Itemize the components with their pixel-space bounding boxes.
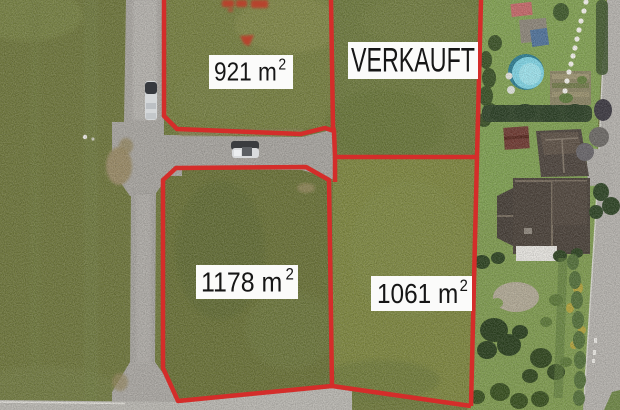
svg-text:2: 2: [278, 56, 286, 74]
svg-text:921 m: 921 m: [214, 58, 277, 87]
svg-text:2: 2: [460, 277, 468, 295]
svg-text:2: 2: [286, 265, 294, 284]
svg-text:1061 m: 1061 m: [377, 277, 458, 309]
svg-text:1178 m: 1178 m: [201, 266, 282, 298]
svg-text:VERKAUFT: VERKAUFT: [351, 42, 475, 79]
